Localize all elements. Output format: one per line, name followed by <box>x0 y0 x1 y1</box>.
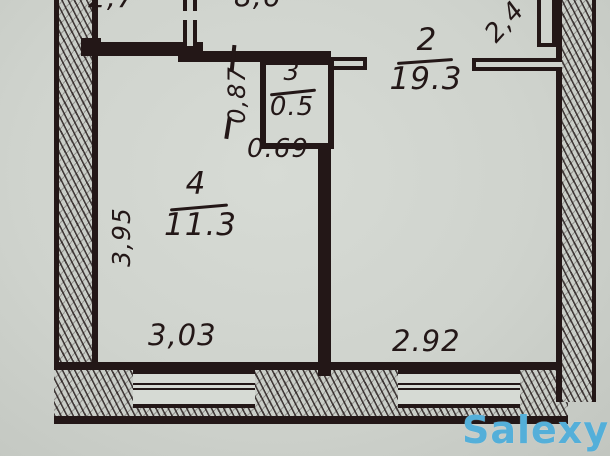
wall-stub-room2-right <box>472 58 562 71</box>
window-room2 <box>398 370 520 408</box>
dimension-room2-width: 2.92 <box>392 326 461 356</box>
wall-stub-room2-left <box>331 57 367 70</box>
wall-topleft-vertical-lower <box>183 20 197 46</box>
wall-left <box>54 0 98 408</box>
dimension-room4-width: 3,03 <box>148 320 217 350</box>
dimension-top-middle: 8,6 <box>234 0 282 11</box>
wall-topleft-vertical-upper <box>183 0 197 11</box>
room4-number: 4 <box>176 168 216 201</box>
floor-plan: 2 19.3 3 0.5 4 11.3 2,7 8,6 2,4 0,87 0.6… <box>0 0 610 456</box>
dimension-room4-height: 3,95 <box>109 202 135 272</box>
dimension-closet-width: 0.69 <box>247 136 309 163</box>
room2-area: 19.3 <box>388 63 464 96</box>
wall-topright-vertical <box>537 0 556 47</box>
dimension-closet-depth: 0,87 <box>225 64 251 126</box>
room3-number: 3 <box>268 59 316 85</box>
room2-number: 2 <box>398 24 456 57</box>
dimension-top-left: 2,7 <box>88 0 136 12</box>
wall-right <box>556 0 596 402</box>
watermark-logo: Salexy <box>462 408 609 452</box>
room3-area: 0.5 <box>263 94 321 121</box>
dimension-top-right: 2,4 <box>472 0 539 56</box>
wall-topleft-notch <box>81 38 101 44</box>
window-room4 <box>133 370 255 408</box>
room4-area: 11.3 <box>164 209 236 242</box>
